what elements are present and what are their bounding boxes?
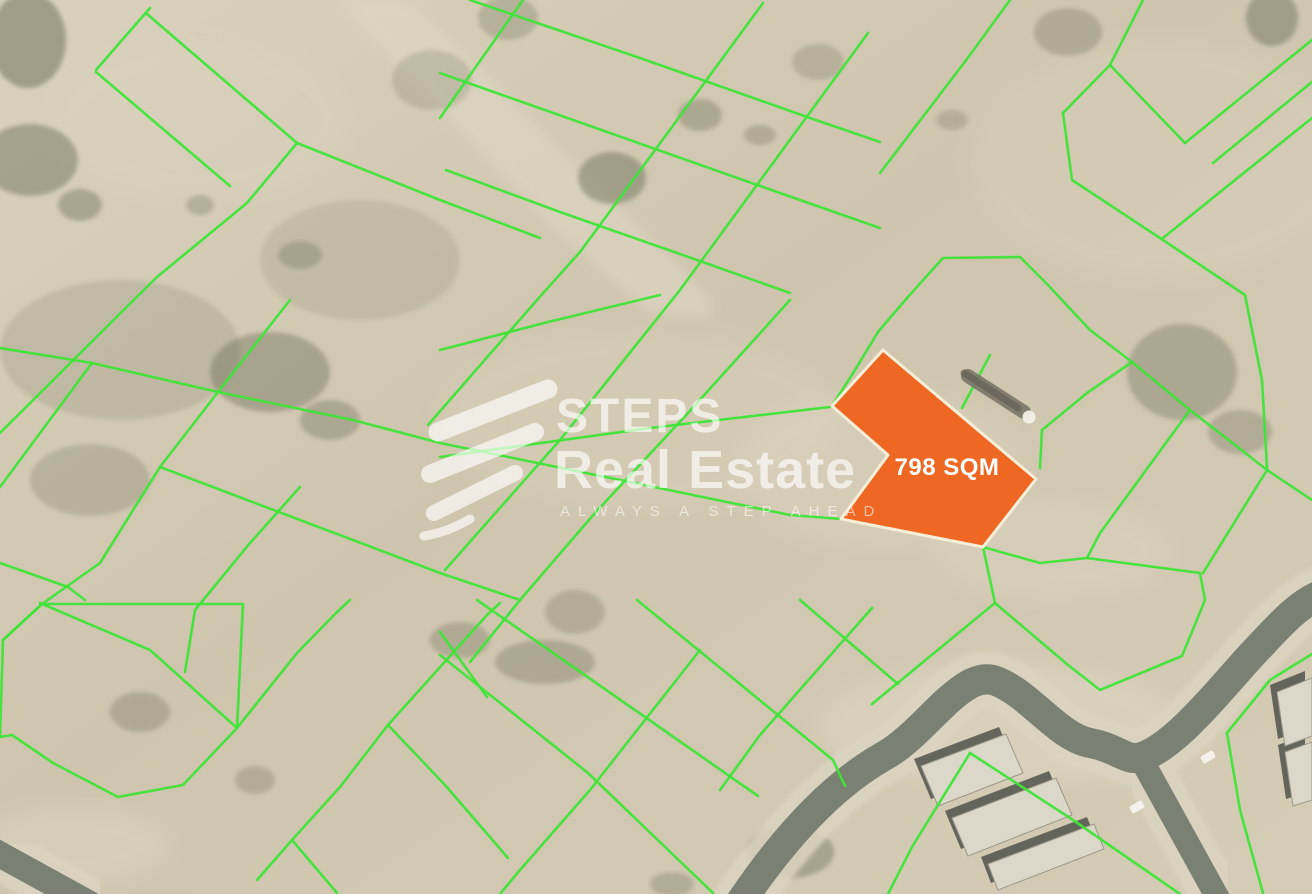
plot-area-label: 798 SQM — [895, 454, 1000, 481]
watermark-subtitle: Real Estate — [554, 440, 856, 500]
map-canvas: 798 SQM STEPS Real Estate ALWAYS A STEP … — [0, 0, 1312, 894]
watermark-title: STEPS — [556, 390, 723, 443]
satellite-map-image: 798 SQM STEPS Real Estate ALWAYS A STEP … — [0, 0, 1312, 894]
watermark-tagline: ALWAYS A STEP AHEAD — [560, 503, 882, 520]
